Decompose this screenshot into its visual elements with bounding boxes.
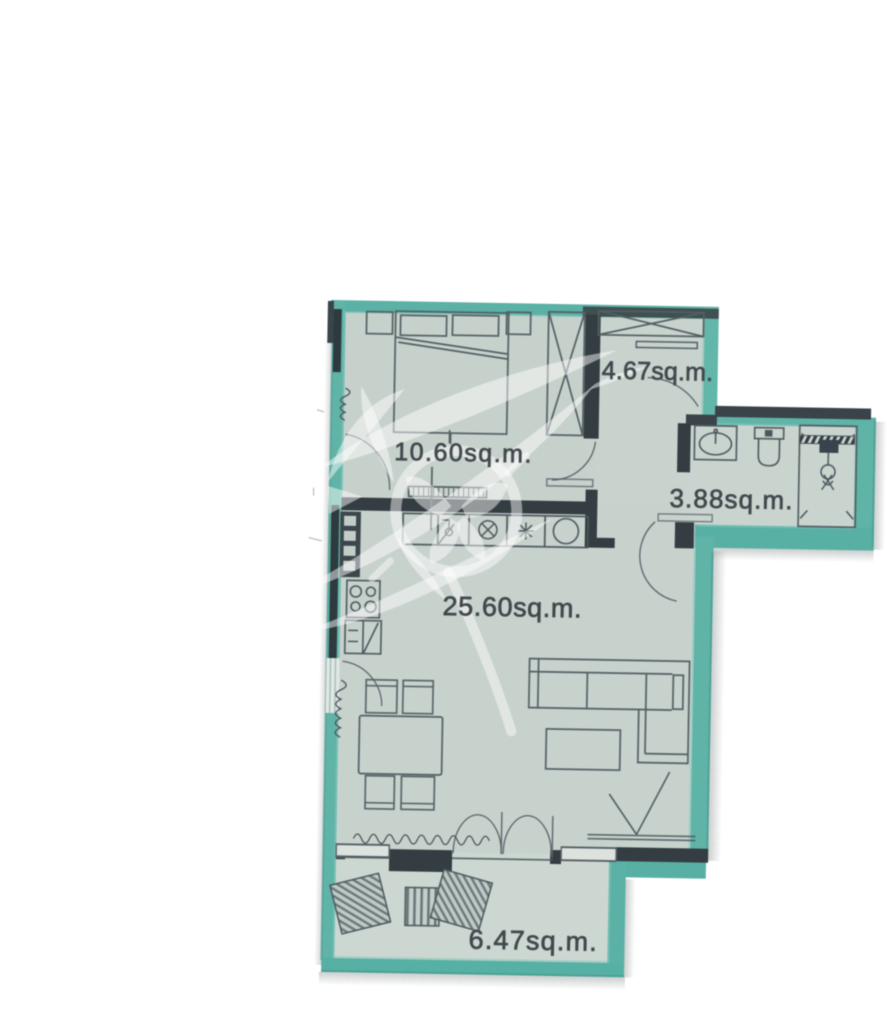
svg-text:10.60sq.m.: 10.60sq.m. (394, 438, 533, 468)
svg-text:6.47sq.m.: 6.47sq.m. (468, 925, 598, 957)
svg-text:4.67sq.m.: 4.67sq.m. (602, 357, 714, 387)
svg-text:3.88sq.m.: 3.88sq.m. (669, 483, 794, 515)
svg-text:25.60sq.m.: 25.60sq.m. (442, 591, 582, 623)
